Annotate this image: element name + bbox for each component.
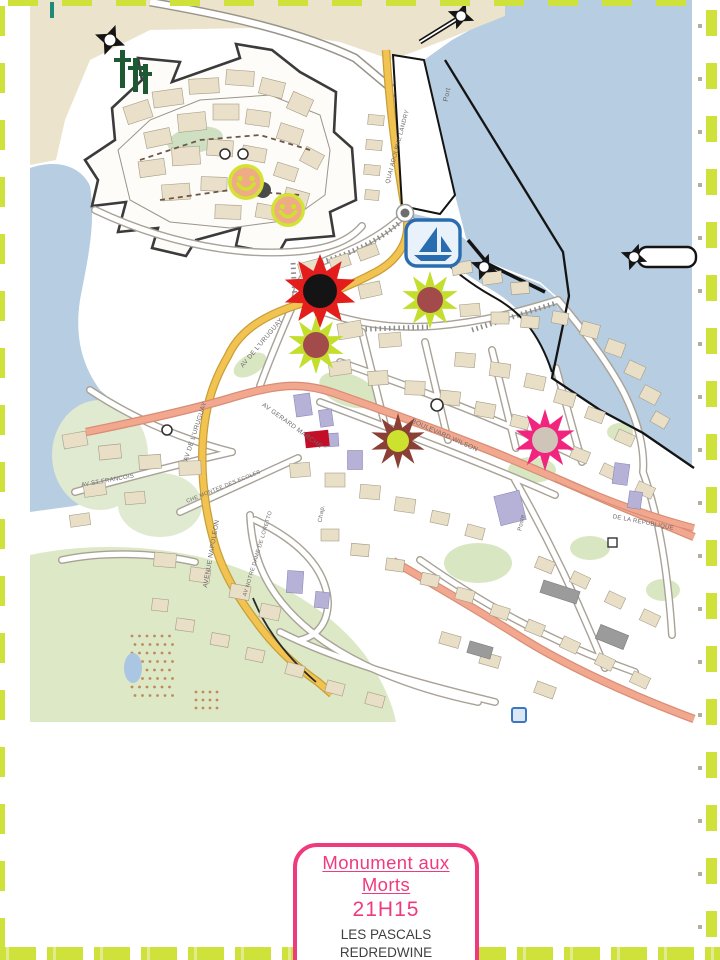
- chapel-icon: [512, 708, 526, 722]
- street-label: Chap.: [318, 505, 327, 523]
- monument-time: 21H15: [297, 898, 475, 922]
- event-map-poster: PortQUAI ADOLPHE LANDRYAV DE L'URUGUAYAV…: [0, 0, 720, 960]
- batucada-map-marker-1: [402, 271, 457, 329]
- monument-line: LES PASCALS: [297, 926, 475, 944]
- pine-trees-icon: [114, 50, 152, 94]
- map-square: [608, 538, 617, 547]
- east-pier: [638, 247, 696, 267]
- monument-aux-morts-box: Monument aux Morts 21H15 LES PASCALS RED…: [293, 843, 479, 960]
- page-border-top: [8, 0, 700, 6]
- map-ring-2: [431, 399, 443, 411]
- page-border-left: [0, 6, 5, 948]
- monument-title: Monument aux Morts: [297, 852, 475, 896]
- roundabout-dot: [401, 209, 410, 218]
- map-ring-1: [162, 425, 172, 435]
- place-darmes-map-smiley: [271, 193, 305, 227]
- pond: [124, 653, 142, 683]
- page-border-right-ticks: [698, 24, 702, 948]
- oratoire-map-smiley: [228, 164, 264, 200]
- marina-sailboat-icon: [406, 220, 460, 266]
- town-map: PortQUAI ADOLPHE LANDRYAV DE L'URUGUAYAV…: [0, 0, 720, 730]
- street-label: AV GERARD MARCHE: [260, 402, 323, 451]
- page-border-right: [706, 10, 717, 948]
- monument-line: REDREDWINE: [297, 944, 475, 960]
